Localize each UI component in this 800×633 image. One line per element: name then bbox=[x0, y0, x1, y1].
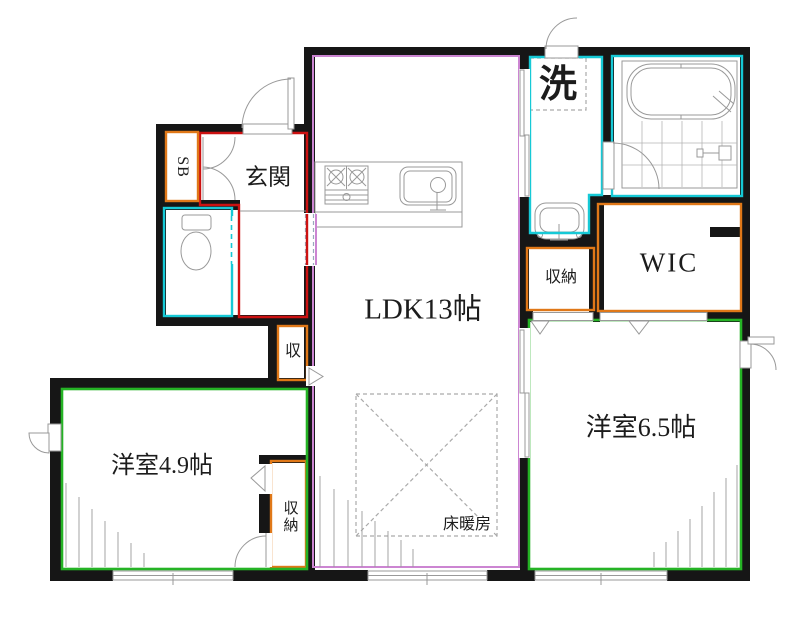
label-genkan: 玄関 bbox=[245, 166, 291, 189]
label-hall-storage: 収納 bbox=[545, 270, 577, 286]
hatch-lines bbox=[66, 465, 737, 567]
corridor-ldk-opening bbox=[304, 213, 316, 266]
toilet-icon bbox=[181, 215, 211, 270]
label-bedroom-closet: 収納 bbox=[282, 500, 297, 534]
laundry-door bbox=[545, 18, 578, 58]
label-room49: 洋室4.9帖 bbox=[111, 454, 213, 478]
floor-plan: 玄関 SB 洗 収納 WIC LDK13帖 収 洋室4.9帖 収納 洋室6.5帖… bbox=[0, 0, 800, 633]
label-shoe-box: SB bbox=[174, 156, 190, 178]
room65-outline bbox=[529, 320, 741, 569]
entrance-door bbox=[242, 78, 294, 134]
label-room65: 洋室6.5帖 bbox=[586, 415, 697, 441]
kitchen-counter-icon bbox=[315, 162, 462, 227]
bathtub-icon bbox=[622, 61, 737, 188]
label-floor-heating: 床暖房 bbox=[441, 517, 493, 533]
toilet-door bbox=[228, 216, 235, 264]
bathroom-outline bbox=[612, 56, 742, 196]
floor-heating-area bbox=[356, 394, 497, 536]
shu-opening-ldk bbox=[306, 366, 323, 386]
entrance-outline bbox=[200, 133, 307, 317]
wic-wall-stub bbox=[710, 227, 741, 237]
storage-opening-room65 bbox=[531, 313, 593, 335]
vanity-sink-icon bbox=[535, 203, 584, 240]
sliding-door-room65 bbox=[519, 328, 530, 458]
window-ldk bbox=[368, 571, 487, 585]
window-room49 bbox=[113, 571, 233, 585]
label-laundry: 洗 bbox=[539, 66, 577, 104]
sliding-door-laundry bbox=[519, 69, 530, 197]
label-shu: 収 bbox=[285, 344, 301, 360]
shoe-box-doors bbox=[203, 137, 235, 200]
room49-door bbox=[29, 424, 61, 453]
bathroom-door bbox=[603, 142, 659, 189]
window-room65 bbox=[535, 571, 667, 585]
room65-door bbox=[740, 337, 776, 370]
wic-opening-room65 bbox=[600, 313, 707, 335]
label-wic: WIC bbox=[640, 250, 698, 277]
label-ldk: LDK13帖 bbox=[364, 296, 482, 325]
